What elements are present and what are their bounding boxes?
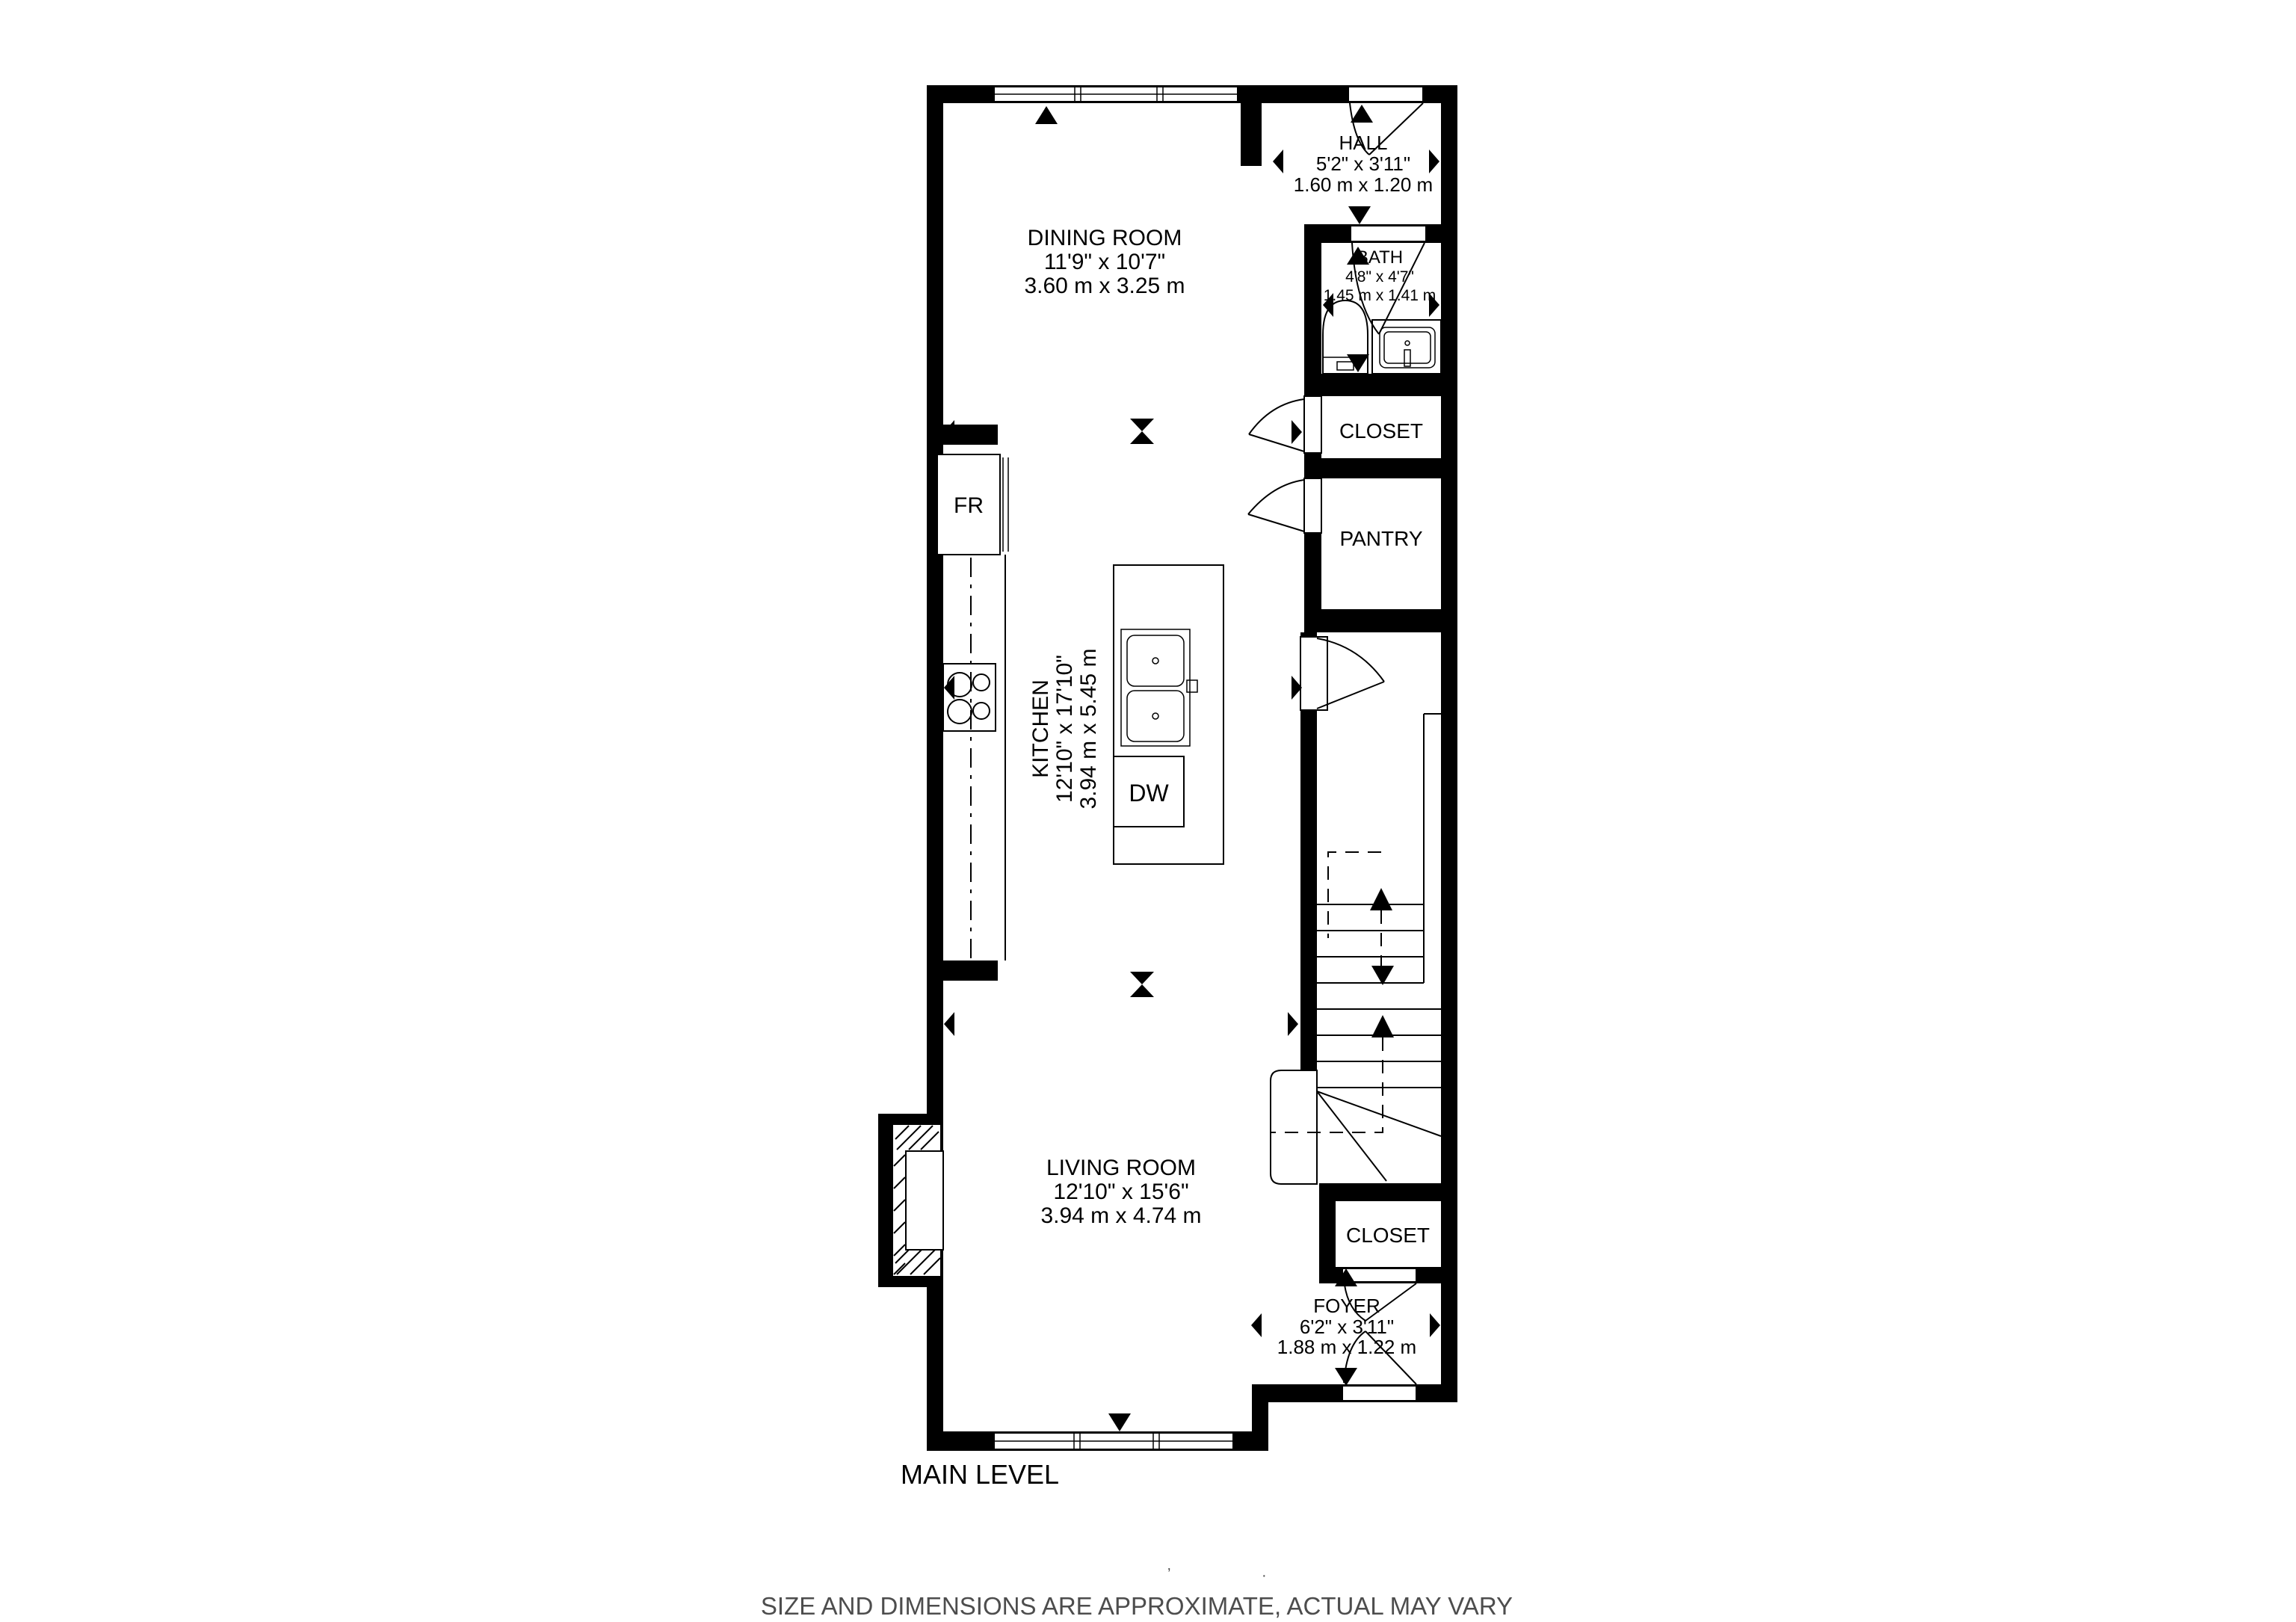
- floor-plan: DW FR: [0, 0, 2296, 1622]
- wall-lower-closet-top: [1319, 1183, 1457, 1201]
- wall-closet-pantry-divider: [1304, 458, 1457, 478]
- level-caption: MAIN LEVEL: [901, 1459, 1059, 1490]
- bath-name: BATH: [1357, 247, 1403, 268]
- foyer-name: FOYER: [1313, 1295, 1380, 1317]
- stair-newel-wall: [1271, 1070, 1317, 1184]
- stair-break-line: [1328, 852, 1381, 938]
- window-top: [994, 87, 1238, 102]
- closet-upper-name: CLOSET: [1339, 419, 1423, 442]
- arrow-right-dining: [1291, 420, 1302, 444]
- arrow-up-dining: [1035, 106, 1058, 124]
- arrow-right-living: [1288, 1012, 1298, 1036]
- wall-left-lower: [927, 1287, 943, 1451]
- wall-column-seg2: [1304, 533, 1321, 609]
- hourglass-dining-kitchen-top: [1130, 419, 1154, 431]
- hall-name: HALL: [1339, 132, 1387, 154]
- living-room-name: LIVING ROOM: [1046, 1156, 1196, 1180]
- wall-pantry-bottom: [1304, 609, 1457, 632]
- refrigerator-label: FR: [954, 493, 984, 518]
- closet-upper-label: CLOSET: [1339, 419, 1423, 442]
- dining-room-label: DINING ROOM 11'9" x 10'7" 3.60 m x 3.25 …: [1024, 226, 1185, 298]
- stray-tick: ’: [1167, 1566, 1170, 1582]
- wall-hall-stub: [1241, 103, 1262, 166]
- bathroom-sink-icon: [1372, 320, 1441, 374]
- wall-right: [1441, 85, 1457, 1402]
- foyer-label: FOYER 6'2" x 3'11" 1.88 m x 1.22 m: [1277, 1295, 1416, 1358]
- arrow-down-front-door: [1335, 1368, 1357, 1386]
- dining-room-dims-imperial: 11'9" x 10'7": [1044, 250, 1165, 274]
- arrow-right-foyer: [1430, 1313, 1440, 1337]
- arrow-left-foyer: [1251, 1313, 1262, 1337]
- bath-dims-metric: 1.45 m x 1.41 m: [1324, 287, 1436, 304]
- arrow-down-hall: [1348, 206, 1371, 224]
- living-room-label: LIVING ROOM 12'10" x 15'6" 3.94 m x 4.74…: [1040, 1156, 1201, 1228]
- arrow-left-hall: [1273, 149, 1283, 173]
- living-room-dims-metric: 3.94 m x 4.74 m: [1040, 1203, 1201, 1228]
- bath-dims-imperial: 4'8" x 4'7": [1345, 268, 1414, 286]
- window-bottom: [994, 1433, 1233, 1449]
- dishwasher-label: DW: [1129, 780, 1169, 807]
- stair-stringer: [1424, 714, 1441, 983]
- pantry-label: PANTRY: [1340, 527, 1423, 550]
- hourglass-dining-kitchen-bottom: [1130, 431, 1154, 444]
- wall-bath-left: [1304, 224, 1321, 390]
- stair-up-arrow: [1370, 888, 1392, 910]
- disclaimer: SIZE AND DIMENSIONS ARE APPROXIMATE, ACT…: [761, 1592, 1513, 1620]
- foyer-dims-imperial: 6'2" x 3'11": [1300, 1316, 1394, 1338]
- fireplace: [878, 1114, 943, 1287]
- kitchen-dims-metric: 3.94 m x 5.45 m: [1076, 648, 1101, 809]
- sink-icon: [1121, 629, 1197, 746]
- dining-room-name: DINING ROOM: [1028, 226, 1182, 250]
- arrow-down-living: [1108, 1413, 1131, 1431]
- stair-door: [1300, 637, 1384, 710]
- pantry-name: PANTRY: [1340, 527, 1423, 550]
- dining-room-dims-metric: 3.60 m x 3.25 m: [1024, 274, 1185, 298]
- arrow-up-hall: [1351, 105, 1373, 123]
- stray-dot: ·: [1262, 1567, 1267, 1584]
- foyer-dims-metric: 1.88 m x 1.22 m: [1277, 1336, 1416, 1358]
- hall-dims-metric: 1.60 m x 1.20 m: [1294, 173, 1433, 196]
- dishwasher: DW: [1114, 756, 1184, 827]
- kitchen-label: KITCHEN 12'10" x 17'10" 3.94 m x 5.45 m: [1028, 648, 1101, 809]
- wall-kitchen-stub-lower: [927, 960, 998, 981]
- hall-label: HALL 5'2" x 3'11" 1.60 m x 1.20 m: [1294, 132, 1433, 196]
- bath-label: BATH 4'8" x 4'7" 1.45 m x 1.41 m: [1324, 247, 1436, 304]
- wall-left-upper: [927, 85, 943, 1114]
- stair-up-arrow-2: [1371, 1015, 1394, 1037]
- room-labels: DINING ROOM 11'9" x 10'7" 3.60 m x 3.25 …: [1024, 132, 1436, 1358]
- cooktop-icon: [943, 664, 996, 731]
- bath-fixtures: [1323, 300, 1441, 374]
- hall-dims-imperial: 5'2" x 3'11": [1316, 152, 1410, 175]
- stairs: [1271, 714, 1441, 1184]
- living-room-dims-imperial: 12'10" x 15'6": [1053, 1180, 1188, 1204]
- firebox: [906, 1151, 943, 1250]
- kitchen-name: KITCHEN: [1028, 679, 1053, 778]
- arrow-right-hall: [1429, 149, 1439, 173]
- closet-lower-label: CLOSET: [1346, 1224, 1430, 1247]
- closet-lower-name: CLOSET: [1346, 1224, 1430, 1247]
- kitchen-dims-imperial: 12'10" x 17'10": [1052, 655, 1077, 803]
- arrow-left-living: [944, 1012, 954, 1036]
- wall-bath-bottom: [1304, 374, 1457, 396]
- closet-upper-door: [1249, 396, 1321, 453]
- pantry-door: [1248, 478, 1321, 533]
- wall-kitchen-stub-upper: [927, 425, 998, 445]
- stair-winders: [1317, 1091, 1441, 1181]
- hourglass-kitchen-living-bottom: [1130, 984, 1154, 997]
- hourglass-kitchen-living-top: [1130, 972, 1154, 984]
- stair-treads: [1317, 904, 1441, 1088]
